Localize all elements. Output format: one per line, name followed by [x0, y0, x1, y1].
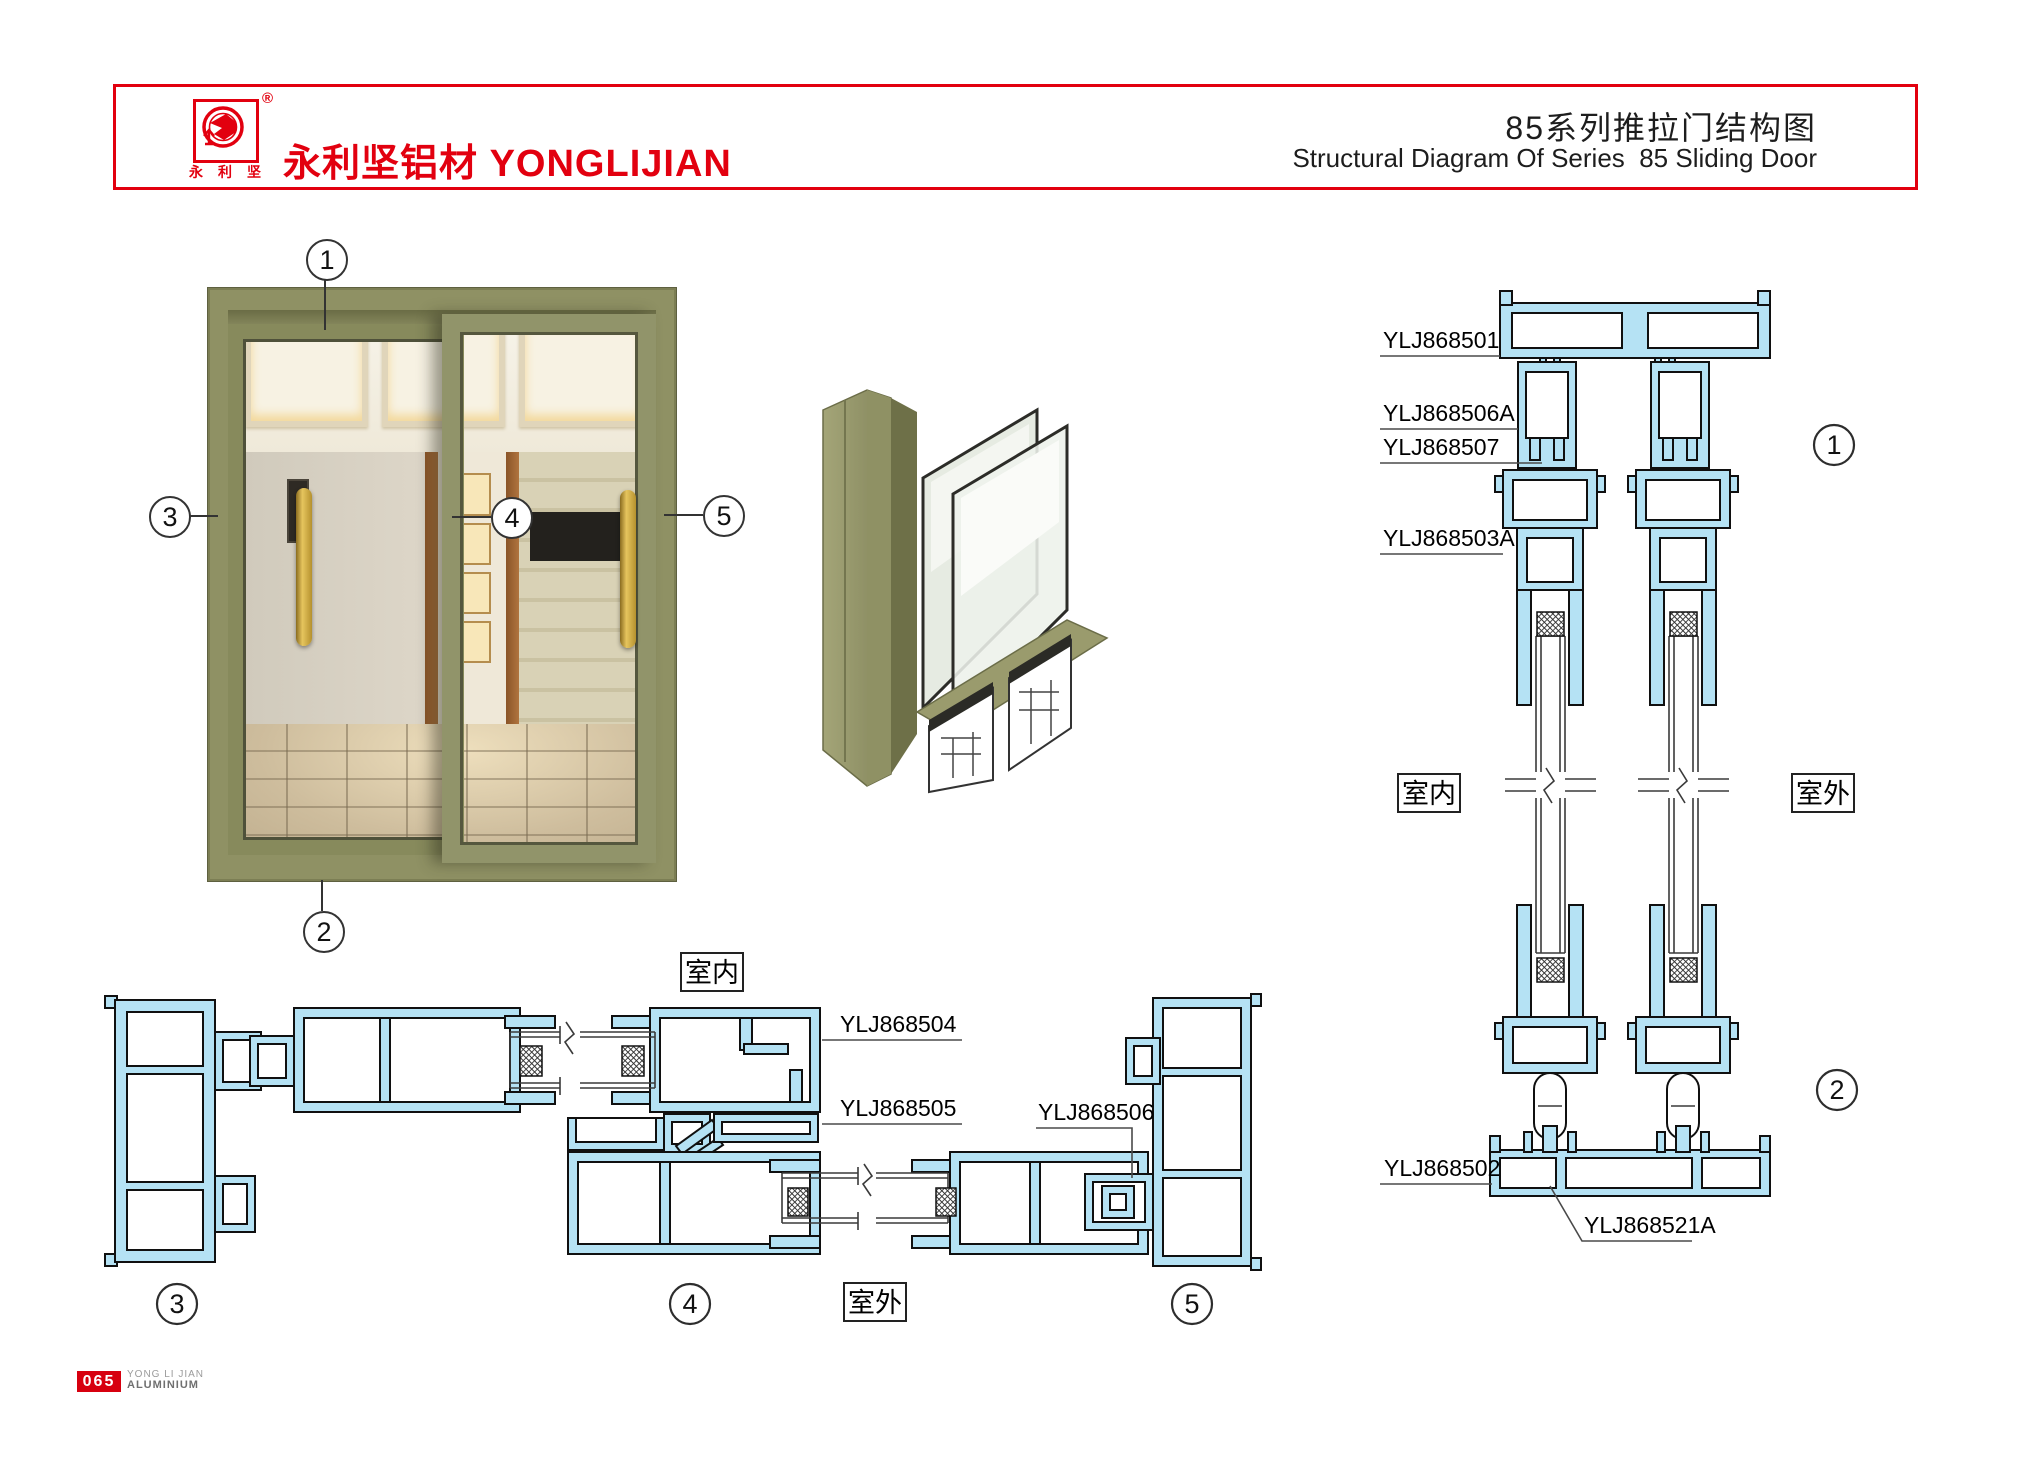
footer-brand: YONG LI JIAN ALUMINIUM	[127, 1369, 204, 1391]
section-callout-3: 3	[157, 1284, 197, 1324]
vs-zone-outdoor: 室外	[1792, 774, 1854, 812]
svg-text:5: 5	[1184, 1289, 1199, 1319]
svg-text:4: 4	[682, 1289, 697, 1319]
door-handle-right	[620, 490, 636, 648]
svg-text:室内: 室内	[685, 958, 739, 988]
section-callout-2: 2	[1817, 1070, 1857, 1110]
page-number-badge: 065	[77, 1371, 121, 1392]
part-label: YLJ868505	[840, 1095, 956, 1121]
section-callout-4: 4	[670, 1284, 710, 1324]
logo-emblem-icon	[196, 102, 250, 154]
callout-line-3	[187, 515, 218, 517]
logo-char: 永	[189, 162, 203, 182]
callout-3: 3	[149, 496, 191, 538]
svg-text:室外: 室外	[1796, 779, 1850, 809]
vs-glass-spacers	[1537, 612, 1697, 982]
section-callout-5: 5	[1172, 1284, 1212, 1324]
callout-4: 4	[491, 497, 533, 539]
sliding-door-photo	[207, 287, 677, 882]
part-label: YLJ868504	[840, 1011, 957, 1037]
brand-name: 永利坚铝材 YONGLIJIAN	[283, 132, 732, 187]
hs-zone-outdoor: 室外	[844, 1283, 906, 1321]
part-label: YLJ868506A	[1383, 400, 1515, 426]
svg-text:室内: 室内	[1402, 779, 1456, 809]
vertical-section-drawing: YLJ868501 YLJ868506A YLJ868507 YLJ868503…	[1370, 285, 1926, 1261]
brand-name-cn: 永利坚铝材	[283, 143, 478, 185]
door-handle-left	[296, 488, 312, 646]
catalog-page: ® 永 利 坚 永利坚铝材 YONGLIJIAN 85系列推拉门结构图 Stru…	[0, 0, 2027, 1457]
svg-text:室外: 室外	[848, 1288, 902, 1318]
svg-text:2: 2	[1829, 1075, 1844, 1105]
part-label: YLJ868521A	[1584, 1212, 1716, 1238]
logo-char: 利	[218, 162, 232, 182]
callout-5: 5	[703, 495, 745, 537]
callout-line-4	[452, 516, 491, 518]
horizontal-section-drawing: YLJ868504 YLJ868505 YLJ868506 室内 室外 3 4	[100, 945, 1270, 1335]
svg-text:3: 3	[169, 1289, 184, 1319]
callout-line-1	[324, 277, 326, 330]
callout-line-2	[321, 880, 323, 911]
part-label: YLJ868506	[1038, 1099, 1154, 1125]
brand-name-en: YONGLIJIAN	[490, 143, 732, 185]
hs-profiles	[105, 994, 1261, 1270]
callout-1: 1	[306, 239, 348, 281]
callout-line-5	[664, 514, 703, 516]
page-subtitle: Structural Diagram Of Series 85 Sliding …	[1292, 143, 1817, 174]
vs-profiles	[1490, 291, 1770, 1196]
profile-3d-render	[805, 382, 1120, 794]
footer-brand-line2: ALUMINIUM	[127, 1380, 204, 1391]
part-label: YLJ868507	[1383, 434, 1499, 460]
door-sash-left	[228, 324, 464, 855]
hs-zone-indoor: 室内	[681, 953, 743, 991]
section-callout-1: 1	[1814, 425, 1854, 465]
logo-char: 坚	[247, 162, 261, 182]
brand-logo	[193, 99, 259, 163]
part-label: YLJ868503A	[1383, 525, 1515, 551]
part-label: YLJ868502	[1384, 1155, 1500, 1181]
registered-mark: ®	[262, 90, 273, 107]
svg-text:1: 1	[1826, 430, 1841, 460]
logo-caption: 永 利 坚	[189, 162, 261, 182]
vs-zone-indoor: 室内	[1398, 774, 1460, 812]
part-label: YLJ868501	[1383, 327, 1499, 353]
